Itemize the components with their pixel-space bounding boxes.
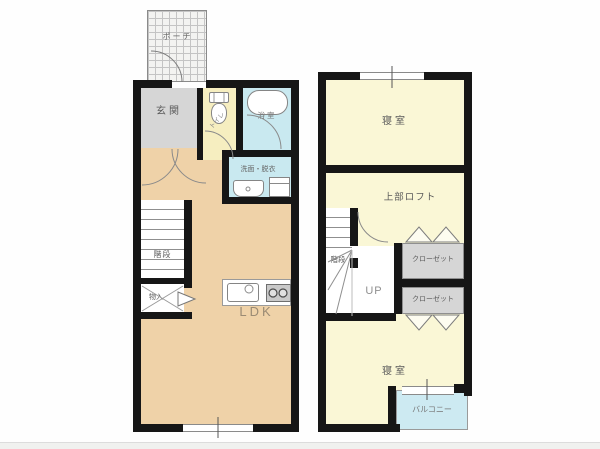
up-label: UP — [352, 286, 396, 297]
bedroom-top-label: 寝室 — [326, 117, 464, 127]
bedroom-bottom-label: 寝室 — [326, 367, 464, 377]
wall-segment — [318, 72, 326, 432]
wall-segment — [326, 165, 464, 173]
wall-segment — [402, 279, 464, 287]
wall-segment — [464, 72, 472, 396]
wall-segment — [388, 386, 396, 432]
window-balcony — [402, 386, 454, 395]
stairs-label-2f: 階段 — [321, 256, 355, 264]
wall-segment — [394, 243, 402, 314]
closet-upper-label: クローゼット — [402, 256, 464, 263]
wall-segment — [350, 208, 358, 246]
wall-segment — [454, 384, 472, 393]
closet-lower-label: クローゼット — [402, 296, 464, 303]
up-hall — [358, 246, 394, 316]
stairs-second-floor — [326, 208, 352, 252]
window-bedroom-top — [360, 72, 424, 80]
loft-label: 上部ロフト — [356, 193, 464, 203]
second-floor-plan: 寝室 上部ロフト 階段 UP クローゼット クローゼット 寝室 バルコニー — [0, 0, 600, 448]
wall-segment — [318, 313, 396, 321]
balcony-label: バルコニー — [396, 406, 468, 414]
